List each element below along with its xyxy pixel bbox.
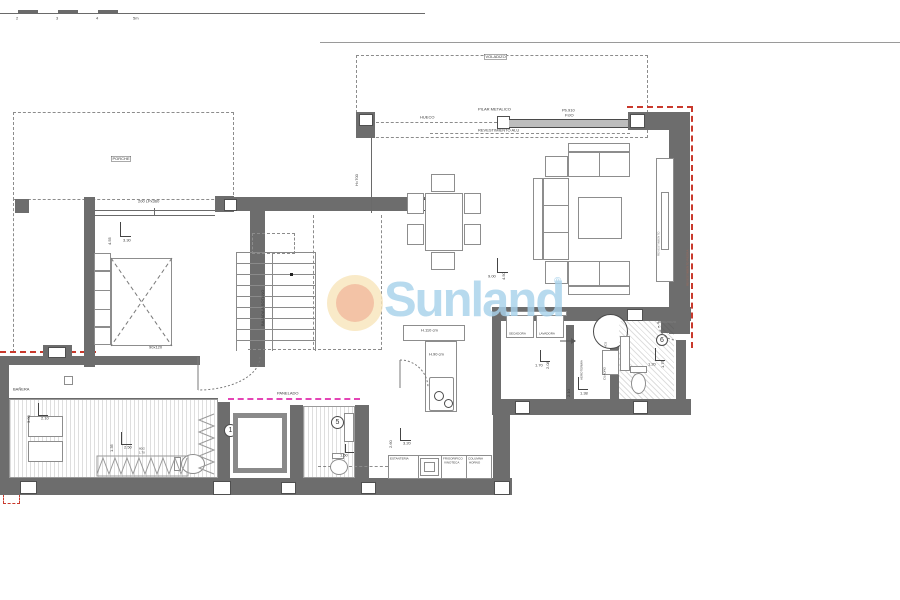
entry-wall: [0, 356, 200, 365]
dim-bedroom-v: 4.55: [108, 237, 112, 245]
nightstand: [94, 253, 111, 271]
headboard-divider: [94, 309, 111, 310]
dim-bath-master-v: 3.00: [27, 415, 31, 423]
toilet-bowl: [330, 459, 348, 475]
sofa-cushion-divider: [543, 232, 569, 233]
scale-tick-2: 2: [16, 16, 18, 21]
dining-chair: [407, 193, 424, 214]
dining-table: [425, 193, 463, 251]
pb910-label: Pb.910: [562, 108, 575, 113]
bath-right-east-wall: [676, 340, 686, 401]
bed: [111, 258, 172, 346]
sunland-watermark: Sunland ®: [320, 268, 590, 343]
dim-laundry-h: 1.70: [535, 363, 543, 368]
dim-mark: [38, 403, 48, 416]
counter-divider: [418, 455, 419, 479]
glass-height-label: H=700: [355, 174, 359, 186]
porch-pillar: [15, 199, 29, 213]
dim-mark: [121, 432, 132, 445]
scale-bar-bump: [98, 10, 118, 13]
dining-chair: [431, 174, 455, 192]
dim-bath-right-h: 1.20: [648, 362, 656, 367]
dim-mark: [120, 222, 131, 237]
shower-box: [233, 413, 287, 473]
toilet-tank: [174, 457, 181, 471]
toilet-bowl: [631, 373, 646, 394]
scale-tick-3: 3: [56, 16, 58, 21]
porch-side-dash: [13, 198, 14, 352]
hueco-label: HUECO: [420, 115, 434, 120]
scale-tick-5m: 5m: [133, 16, 139, 21]
dim-mark: [578, 377, 588, 390]
window-opening-dash: [376, 122, 497, 123]
fijo-label: FIJO: [565, 113, 574, 118]
bottom-wall: [0, 478, 512, 495]
fixed-glazing: [509, 119, 630, 128]
stair-void-dash: [252, 233, 295, 254]
counter-divider: [466, 455, 467, 479]
shower-size-label: 90x120: [149, 345, 162, 350]
dining-chair: [464, 193, 481, 214]
dim-laundry-v: 2.08: [546, 361, 550, 369]
living-west-pillar-cap: [359, 114, 373, 126]
south-wall-pillar: [633, 401, 648, 414]
bath-small-sink: [344, 413, 354, 442]
logo-circle-inner: [336, 284, 374, 322]
floor-drain: [64, 376, 73, 385]
bottom-wall-pillar: [213, 481, 231, 495]
armchair: [545, 156, 568, 177]
counter-appliance-inner: [424, 462, 435, 472]
porch-label: PORCHE: [111, 156, 131, 162]
dim-utility-v: 2.10: [567, 389, 571, 397]
cantilever-label: VOLADIZO: [484, 54, 507, 60]
revestimiento-alu-label: REVESTIMIENTO ALU: [478, 128, 519, 133]
sheet-edge-line: [320, 42, 900, 43]
bottom-wall-pillar: [20, 481, 37, 494]
toilet-bowl: [181, 454, 205, 474]
dim-bath-small-h: 1.50: [340, 453, 348, 458]
sink-bowl: [444, 399, 453, 408]
counter-label-horno: HORNO: [469, 461, 480, 466]
boundary-red-marker: [3, 494, 20, 504]
sofa-back: [533, 178, 543, 260]
electrical-box-label: CUADRO: [603, 367, 607, 380]
bottom-wall-pillar: [361, 482, 376, 494]
counter-divider: [441, 455, 442, 479]
kitchen-east-wall: [493, 411, 510, 481]
dim-mark: [400, 428, 411, 441]
dim-hall-v: 1.35: [110, 444, 114, 452]
stair-north-wall: [222, 197, 438, 211]
water-heater-label: ACS: [604, 342, 608, 348]
registered-mark-icon: ®: [554, 276, 561, 287]
scale-bar-line: [0, 13, 425, 14]
sofa-cushion-divider: [599, 152, 600, 177]
facade-dash: [430, 133, 630, 134]
banera-label: BAÑERA: [13, 387, 29, 392]
stair-rail: [272, 252, 273, 351]
island-body-label: H.90 cm: [429, 352, 444, 357]
bath-master-east-wall: [218, 402, 230, 479]
counter-label-vinoteca: VINOTECA: [444, 461, 459, 466]
door-tag-bath-right: 6: [656, 334, 668, 346]
dim-kitchen-v: 2.60: [389, 440, 393, 448]
nightstand: [94, 327, 111, 345]
stair-wall-pillar: [224, 199, 237, 211]
door-tag-bath-small: 5: [331, 416, 344, 429]
brand-name: Sunland: [384, 272, 563, 328]
bath-sink: [28, 441, 63, 462]
pilar-metalico-label: PILAR METALICO: [478, 107, 511, 112]
bath-master-west-wall: [0, 365, 9, 480]
bedroom-window-tick: [154, 208, 155, 216]
south-wall-pillar: [515, 401, 530, 414]
sofa-back: [568, 143, 630, 152]
tv-cabinet-label: REVESTIMIENTO: [657, 232, 661, 256]
bath-small-east-wall: [355, 405, 369, 480]
scale-tick-4: 4: [96, 16, 98, 21]
utility-wall-pillar: [627, 309, 643, 321]
sink-bowl: [434, 391, 444, 401]
scale-bar-bump: [18, 10, 38, 13]
floor-plan-canvas: 2 3 4 5m PORCHE VOLADIZO: [0, 0, 900, 600]
scale-bar-bump: [58, 10, 78, 13]
bedroom-sw-pillar-cap: [48, 347, 66, 358]
sofa-cushion-divider: [543, 205, 569, 206]
living-glass-wall: [371, 137, 372, 213]
tv-cabinet-inner: [661, 192, 669, 250]
bottom-wall-pillar: [494, 481, 510, 495]
toilet-tank: [630, 366, 647, 373]
dim-hall-h: 2.50: [124, 445, 132, 450]
coffee-table: [578, 197, 622, 239]
dim-bath-master-h: 2.10: [41, 416, 49, 421]
exterior-wall-label: REVESTIMIENTO PIEDRA: [686, 250, 690, 286]
panelado-line: [228, 398, 360, 400]
dining-chair: [464, 224, 481, 245]
right-corner-pillar: [630, 114, 645, 128]
dim-mark: [345, 444, 354, 453]
window-spec-label: 200 LPx360: [138, 199, 159, 204]
counter-label-estanteria: ESTANTERIA: [390, 457, 409, 462]
headboard-divider: [94, 290, 111, 291]
stairs-label: BAJADA A SOTANO: [261, 290, 265, 326]
dim-utility-h: 1.38: [580, 391, 588, 396]
bath-right-sink: [620, 336, 630, 371]
step-note-2: 1.70: [139, 451, 145, 456]
bath-small-west-wall: [290, 405, 303, 480]
stair-dot: [290, 273, 293, 276]
sofa-cushion-divider: [599, 261, 600, 286]
dim-kitchen-h: 3.20: [403, 441, 411, 446]
bed-headboard: [94, 271, 111, 327]
dim-bath-right-v: 1.75: [661, 360, 665, 368]
dim-bedroom-h: 3.30: [123, 238, 131, 243]
dining-chair: [407, 224, 424, 245]
staircase: [236, 252, 316, 351]
bottom-wall-pillar: [281, 482, 296, 494]
sofa: [543, 178, 569, 260]
panelado-label: PANELADO: [277, 391, 298, 396]
